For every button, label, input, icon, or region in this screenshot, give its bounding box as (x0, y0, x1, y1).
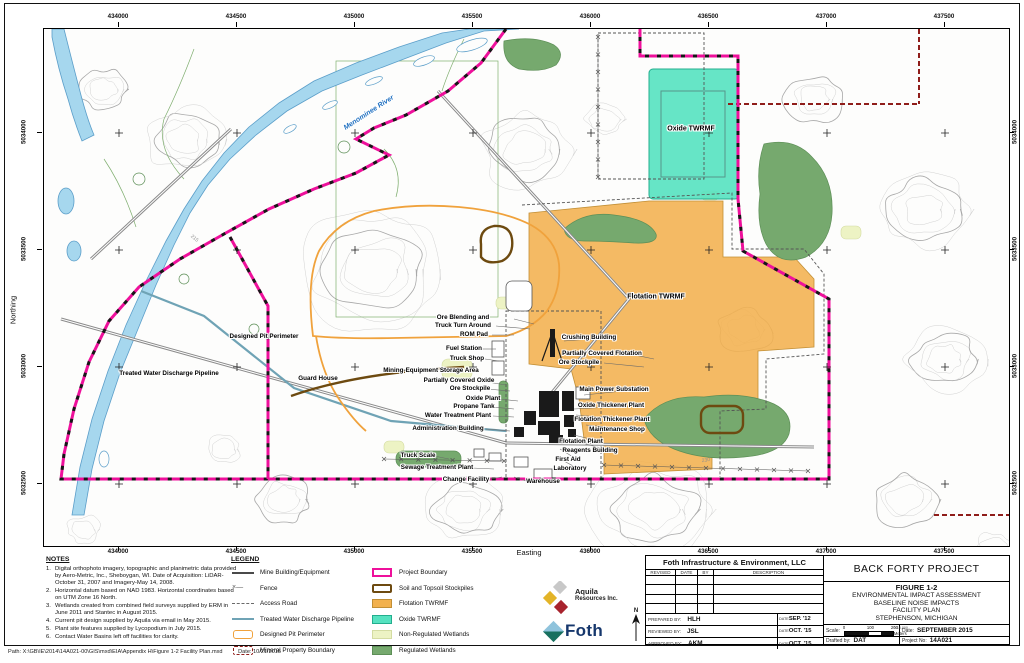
revision-empty-row (646, 576, 823, 585)
swatch-shape (372, 615, 392, 624)
axis-tick (37, 483, 42, 484)
revision-empty-cell (714, 604, 823, 612)
revision-empty-cell (646, 595, 676, 603)
axis-tick (590, 22, 591, 27)
axis-tick (708, 546, 709, 551)
legend-item-label: Flotation TWRMF (399, 600, 448, 607)
project-no-label: Project No: (902, 638, 927, 644)
revision-empty-cell (698, 576, 714, 584)
signature-date: DATEOCT. '15 (777, 638, 823, 649)
axis-tick (118, 22, 119, 27)
title-block-revisions: Foth Infrastructure & Environment, LLC R… (646, 556, 824, 644)
scale-label: Scale: (826, 628, 840, 634)
signature-date-value: OCT. '15 (789, 641, 812, 647)
note-number: 5. (46, 626, 55, 633)
legend-columns: Mine Building/EquipmentFenceAccess RoadT… (231, 565, 531, 656)
figure-line: FACILITY PLAN (824, 607, 1009, 615)
rev-header: BY (698, 570, 714, 575)
axis-tick (708, 22, 709, 27)
figure-sheet: Menominee RiverOxide TWRMFFlotation TWRM… (0, 0, 1024, 663)
title-block-figure: BACK FORTY PROJECT FIGURE 1-2 ENVIRONMEN… (824, 556, 1009, 644)
foth-name: Foth (565, 621, 603, 641)
northing-label-left: 5033000 (21, 354, 28, 378)
axis-tick (472, 546, 473, 551)
notes-title: NOTES (46, 556, 238, 564)
figure-line: BASELINE NOISE IMPACTS (824, 600, 1009, 608)
rev-header: DESCRIPTION (714, 570, 823, 575)
axis-tick (236, 22, 237, 27)
project-swatch-icon (370, 567, 394, 578)
scale-bar-segments (844, 631, 894, 637)
note-item: 2.Horizontal datum based on NAD 1983. Ho… (46, 588, 238, 602)
legend-item: Designed Pit Perimeter (231, 629, 354, 640)
legend-block: LEGEND Mine Building/EquipmentFenceAcces… (231, 556, 531, 656)
legend-item: Project Boundary (370, 567, 473, 578)
signature-row: PREPARED BY:HLHDATESEP. '12 (646, 614, 823, 626)
northing-label-left: 5034000 (21, 120, 28, 144)
file-path-line: Path: X:\GB\IE\2014\14A021-00\GIS\mxd\EI… (8, 649, 295, 655)
axis-tick (1009, 249, 1014, 250)
note-number: 1. (46, 566, 55, 587)
legend-item: Treated Water Discharge Pipeline (231, 614, 354, 625)
revision-empty-row (646, 595, 823, 604)
scale-number: 100 (867, 625, 874, 630)
fence-swatch-icon (231, 583, 255, 594)
signature-value: HLH (687, 616, 700, 623)
note-item: 4.Current pit design supplied by Aquila … (46, 618, 238, 625)
rev-header: REVISED (646, 570, 676, 575)
scale-bar: 0100200 1:10,000 Meters (844, 626, 894, 636)
oxide-swatch-icon (370, 614, 394, 625)
aquila-logo: Aquila Resources Inc. (541, 581, 641, 617)
figure-line: STEPHENSON, MICHIGAN (824, 615, 1009, 623)
legend-item-label: Access Road (260, 600, 297, 607)
signature-date-label: DATE (779, 617, 789, 621)
note-text: Plant site features supplied by Lycopodi… (55, 626, 238, 633)
north-arrow: N (630, 608, 642, 646)
revision-empty-cell (714, 595, 823, 603)
note-item: 3.Wetlands created from combined field s… (46, 603, 238, 617)
axis-tick (37, 249, 42, 250)
axis-tick (1009, 132, 1014, 133)
drafted-label: Drafted by: (826, 638, 850, 644)
axis-tick (1009, 483, 1014, 484)
scale-cell: Scale: 0100200 1:10,000 Meters (824, 625, 900, 636)
legend-item-label: Mine Building/Equipment (260, 569, 330, 576)
axis-tick (236, 546, 237, 551)
access-swatch-icon (231, 598, 255, 609)
scale-unit: Meters (894, 631, 907, 636)
swatch-shape (372, 599, 392, 608)
northing-axis-title: Northing (9, 296, 18, 324)
company-name: Foth Infrastructure & Environment, LLC (646, 556, 823, 570)
figure-number: FIGURE 1-2 (824, 583, 1009, 592)
title-block: Foth Infrastructure & Environment, LLC R… (645, 555, 1010, 645)
note-number: 6. (46, 634, 55, 641)
drafted-project-row: Drafted by: DAT Project No: 14A021 (824, 637, 1009, 644)
axis-tick (590, 546, 591, 551)
northing-label-left: 5033500 (21, 237, 28, 261)
topographic-map (44, 29, 1009, 546)
foth-diamond-icon (543, 620, 564, 641)
legend-item: Regulated Wetlands (370, 645, 473, 656)
revision-empty-cell (698, 585, 714, 593)
nonreg-swatch-icon (370, 629, 394, 640)
axis-tick (944, 22, 945, 27)
file-date: Date: 10/21/2015 (238, 649, 281, 655)
swatch-shape (232, 584, 254, 592)
legend-title: LEGEND (231, 556, 531, 563)
pit-swatch-icon (231, 629, 255, 640)
legend-column-2: Project BoundarySoil and Topsoil Stockpi… (370, 567, 473, 656)
aquila-sub: Resources Inc. (575, 596, 618, 602)
north-arrow-icon (630, 614, 642, 642)
axis-tick (37, 366, 42, 367)
note-item: 1.Digital orthophoto imagery, topographi… (46, 566, 238, 587)
signature-date-label: DATE (779, 629, 789, 633)
scale-number: 0 (843, 625, 845, 630)
legend-item-label: Project Boundary (399, 569, 447, 576)
legend-item: Mine Building/Equipment (231, 567, 354, 578)
soil-swatch-icon (370, 583, 394, 594)
map-frame: Menominee RiverOxide TWRMFFlotation TWRM… (43, 28, 1010, 547)
legend-item: Oxide TWRMF (370, 614, 473, 625)
legend-column-1: Mine Building/EquipmentFenceAccess RoadT… (231, 567, 354, 656)
note-text: Digital orthophoto imagery, topographic … (55, 566, 238, 587)
signature-rows: PREPARED BY:HLHDATESEP. '12REVIEWED BY:J… (646, 614, 823, 650)
note-item: 5.Plant site features supplied by Lycopo… (46, 626, 238, 633)
legend-item: Access Road (231, 598, 354, 609)
revision-empty-cell (646, 585, 676, 593)
revision-empty-cell (714, 576, 823, 584)
easting-label-top: 437500 (934, 13, 955, 20)
axis-tick (37, 132, 42, 133)
revision-empty-row (646, 604, 823, 613)
revision-empty-cell (698, 595, 714, 603)
easting-label-top: 434000 (108, 13, 129, 20)
signature-date: DATESEP. '12 (777, 614, 823, 625)
legend-item-label: Soil and Topsoil Stockpiles (399, 585, 473, 592)
notes-list: 1.Digital orthophoto imagery, topographi… (46, 566, 238, 641)
signature-main: APPROVED BY:AKM (646, 638, 777, 649)
signature-row: APPROVED BY:AKMDATEOCT. '15 (646, 638, 823, 649)
project-title-cell: BACK FORTY PROJECT (824, 556, 1009, 582)
legend-item: Non-Regulated Wetlands (370, 629, 473, 640)
legend-item-label: Non-Regulated Wetlands (399, 631, 469, 638)
mine-swatch-icon (231, 567, 255, 578)
axis-tick (944, 546, 945, 551)
date-value: SEPTEMBER 2015 (917, 627, 973, 634)
aquila-diamonds-icon (541, 581, 575, 617)
axis-tick (472, 22, 473, 27)
axis-tick (354, 546, 355, 551)
rev-header: DATE (676, 570, 698, 575)
revision-empty-cell (676, 604, 698, 612)
revision-empty-cell (676, 585, 698, 593)
date-cell: Date: SEPTEMBER 2015 (900, 625, 1009, 636)
easting-axis-title: Easting (516, 548, 541, 557)
signature-value: AKM (688, 640, 703, 647)
legend-item-label: Fence (260, 585, 278, 592)
revision-empty-row (646, 585, 823, 594)
swatch-shape (232, 603, 254, 604)
note-number: 4. (46, 618, 55, 625)
note-number: 3. (46, 603, 55, 617)
note-item: 6.Contact Water Basins left off faciliti… (46, 634, 238, 641)
axis-tick (354, 22, 355, 27)
project-no-value: 14A021 (930, 637, 952, 644)
easting-label-top: 436000 (580, 13, 601, 20)
revision-empty-cell (676, 576, 698, 584)
notes-block: NOTES 1.Digital orthophoto imagery, topo… (46, 556, 238, 642)
signature-date-value: OCT. '15 (789, 628, 812, 634)
easting-label-top: 435500 (462, 13, 483, 20)
scale-ratio: 1:10,000 (894, 626, 908, 630)
note-text: Current pit design supplied by Aquila vi… (55, 618, 238, 625)
note-number: 2. (46, 588, 55, 602)
drafted-value: DAT (853, 637, 866, 644)
northing-label-left: 5032500 (21, 471, 28, 495)
swatch-shape (372, 584, 392, 593)
signature-date-label: DATE (779, 642, 789, 646)
signature-row: REVIEWED BY:JSLDATEOCT. '15 (646, 626, 823, 638)
signature-date: DATEOCT. '15 (777, 626, 823, 637)
axis-tick (118, 546, 119, 551)
note-text: Contact Water Basins left off facilities… (55, 634, 238, 641)
file-path: Path: X:\GB\IE\2014\14A021-00\GIS\mxd\EI… (8, 649, 223, 655)
legend-item: Fence (231, 583, 354, 594)
scale-date-row: Scale: 0100200 1:10,000 Meters Date: SEP… (824, 625, 1009, 637)
figure-title-cell: FIGURE 1-2 ENVIRONMENTAL IMPACT ASSESSME… (824, 582, 1009, 625)
easting-label-top: 435000 (344, 13, 365, 20)
easting-label-top: 434500 (226, 13, 247, 20)
revision-empty-cell (646, 604, 676, 612)
designed-pit-perimeter (311, 206, 560, 431)
easting-label-top: 436500 (698, 13, 719, 20)
signature-date-value: SEP. '12 (789, 616, 811, 622)
axis-tick (826, 546, 827, 551)
revision-empty-cell (714, 585, 823, 593)
note-text: Wetlands created from combined field sur… (55, 603, 238, 617)
swatch-shape (233, 630, 253, 639)
aquila-name: Aquila (575, 587, 618, 596)
swatch-shape (372, 630, 392, 639)
legend-item: Soil and Topsoil Stockpiles (370, 583, 473, 594)
swatch-shape (372, 646, 392, 655)
signature-value: JSL (687, 628, 699, 635)
signature-main: REVIEWED BY:JSL (646, 626, 777, 637)
note-text: Horizontal datum based on NAD 1983. Hori… (55, 588, 238, 602)
reg-swatch-icon (370, 645, 394, 656)
oxide-twrmf-area (649, 69, 739, 199)
axis-tick (826, 22, 827, 27)
legend-item-label: Designed Pit Perimeter (260, 631, 325, 638)
swatch-shape (232, 618, 254, 621)
signature-main: PREPARED BY:HLH (646, 614, 777, 625)
drafted-cell: Drafted by: DAT (824, 637, 900, 644)
revision-empty-cell (646, 576, 676, 584)
legend-item: Flotation TWRMF (370, 598, 473, 609)
swatch-shape (372, 568, 392, 577)
legend-item-label: Treated Water Discharge Pipeline (260, 616, 354, 623)
axis-tick (1009, 366, 1014, 367)
revision-rows (646, 576, 823, 614)
easting-label-top: 437000 (816, 13, 837, 20)
pipe-swatch-icon (231, 614, 255, 625)
project-no-cell: Project No: 14A021 (900, 637, 1009, 644)
figure-lines: ENVIRONMENTAL IMPACT ASSESSMENTBASELINE … (824, 592, 1009, 622)
signature-label: PREPARED BY: (648, 617, 681, 622)
signature-label: REVIEWED BY: (648, 629, 681, 634)
signature-label: APPROVED BY: (648, 641, 682, 646)
legend-item-label: Oxide TWRMF (399, 616, 441, 623)
legend-item-label: Regulated Wetlands (399, 647, 456, 654)
project-title: BACK FORTY PROJECT (854, 563, 980, 575)
swatch-shape (232, 572, 254, 574)
revision-empty-cell (698, 604, 714, 612)
flot-swatch-icon (370, 598, 394, 609)
revision-empty-cell (676, 595, 698, 603)
figure-line: ENVIRONMENTAL IMPACT ASSESSMENT (824, 592, 1009, 600)
